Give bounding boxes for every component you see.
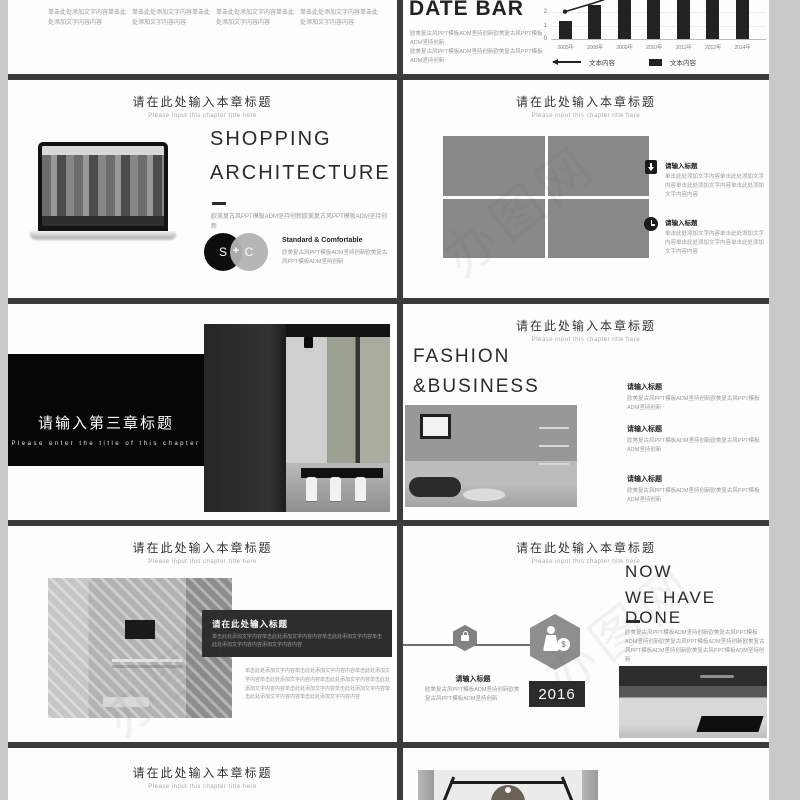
interior-photo-grid xyxy=(443,136,649,258)
venn-diagram: S C + xyxy=(204,233,274,273)
slide-date-bar-chart[interactable]: DATE BAR 欧美复古风PPT模板ADM坚持创新欧美复古风PPT模板ADM坚… xyxy=(403,0,769,74)
chapter-subtitle: Please input this chapter title here xyxy=(403,337,769,343)
list-item: 请输入标题 欧美复古风PPT模板ADM坚持创新欧美复古风PPT模板ADM坚持创新 xyxy=(627,474,767,505)
list-item: 请输入标题 欧美复古风PPT模板ADM坚持创新欧美复古风PPT模板ADM坚持创新 xyxy=(627,382,767,413)
venn-letter-c: C xyxy=(245,245,254,259)
list-item: 请输入标题 单击此处添加文字内容单击此处添加文字内容单击此处添加文字内容单击此处… xyxy=(665,217,765,257)
bedroom-photo-dark xyxy=(548,136,650,196)
section-heading-line2: &BUSINESS xyxy=(413,376,540,398)
alarm-clock-icon xyxy=(644,217,658,231)
laptop-mockup xyxy=(30,142,176,238)
text-block: 单击此处添加文字内容单击此处添加文字内容内容 xyxy=(216,8,298,28)
caption-title: 请在此处输入标题 xyxy=(212,618,382,630)
download-document-icon xyxy=(645,160,657,174)
office-lobby-photo xyxy=(619,666,767,738)
section-heading-line2: WE HAVE DONE xyxy=(625,588,769,628)
slide-chapter-three-banner[interactable]: 请输入第三章标题 Please enter the title of this … xyxy=(8,304,397,520)
heading-dash xyxy=(626,620,640,623)
row-divider-4 xyxy=(8,742,769,748)
template-preview-page: 单击此处添加文字内容单击此处添加文字内容内容 单击此处添加文字内容单击此处添加文… xyxy=(0,0,800,800)
chart-description-1: 欧美复古风PPT模板ADM坚持创新欧美复古风PPT模板ADM坚持创新 xyxy=(410,30,550,48)
dollar-icon: $ xyxy=(557,638,570,651)
slide-text-columns[interactable]: 单击此处添加文字内容单击此处添加文字内容内容 单击此处添加文字内容单击此处添加文… xyxy=(8,0,397,74)
chapter-subtitle: Please input this chapter title here xyxy=(8,113,397,119)
legend-line-arrow-icon xyxy=(553,61,581,63)
text-block: 单击此处添加文字内容单击此处添加文字内容内容 xyxy=(48,8,130,28)
caption-description: 单击此处添加文字内容单击此处添加文字内容内容单击此处添加文字内容单击此处添加文字… xyxy=(212,634,382,649)
slide-interior-photo-grid[interactable]: 请在此处输入本章标题 Please input this chapter tit… xyxy=(403,80,769,298)
section-description: 欧美复古风PPT模板ADM坚持创新欧美复古风PPT模板ADM坚持创新 xyxy=(211,212,391,232)
banner-title: 请输入第三章标题 xyxy=(8,412,204,433)
body-paragraph: 单击此处添加文字内容单击此处添加文字内容内容单击此处添加文字内容单击此处添加文字… xyxy=(245,667,392,702)
lock-icon xyxy=(461,635,469,641)
section-heading-line1: FASHION xyxy=(413,346,510,368)
row-divider-3 xyxy=(8,520,769,526)
chapter-title: 请在此处输入本章标题 xyxy=(8,93,397,110)
list-item: 请输入标题 欧美复古风PPT模板ADM坚持创新欧美复古风PPT模板ADM坚持创新 xyxy=(627,424,767,455)
banner-subtitle: Please enter the title of this chapter xyxy=(8,441,204,447)
slide-now-we-have-done[interactable]: 请在此处输入本章标题 Please input this chapter tit… xyxy=(403,526,769,742)
chapter-subtitle: Please input this chapter title here xyxy=(8,784,397,790)
item-title: 请输入标题 xyxy=(627,424,767,434)
chapter-subtitle: Please input this chapter title here xyxy=(403,559,769,565)
legend-label: 文本内容 xyxy=(670,57,696,67)
chapter-subtitle: Please input this chapter title here xyxy=(8,559,397,565)
slide-photo-caption[interactable]: 请在此处输入本章标题 Please input this chapter tit… xyxy=(8,526,397,742)
item-title: 请输入标题 xyxy=(665,160,765,170)
milestone-title: 请输入标题 xyxy=(429,674,517,684)
chapter-banner: 请输入第三章标题 Please enter the title of this … xyxy=(8,354,204,466)
kitchen-dining-photo xyxy=(204,324,390,512)
study-room-photo xyxy=(443,199,545,259)
slide-pendant-photo[interactable] xyxy=(403,748,769,800)
section-description: 欧美复古风PPT模板ADM坚持创新欧美复古风PPT模板ADM坚持创新欧美复古风P… xyxy=(625,629,767,665)
feature-title: Standard & Comfortable xyxy=(282,237,363,244)
city-street-photo xyxy=(42,146,164,226)
bedroom-photo-light xyxy=(548,199,650,259)
item-description: 欧美复古风PPT模板ADM坚持创新欧美复古风PPT模板ADM坚持创新 xyxy=(627,487,767,505)
chart-legend: 文本内容 文本内容 xyxy=(553,57,696,67)
chapter-title: 请在此处输入本章标题 xyxy=(8,539,397,556)
venn-letter-s: S xyxy=(219,245,227,259)
section-heading-line1: NOW xyxy=(625,562,673,582)
chapter-title: 请在此处输入本章标题 xyxy=(403,317,769,334)
caption-box: 请在此处输入标题 单击此处添加文字内容单击此处添加文字内容内容单击此处添加文字内… xyxy=(202,610,392,657)
item-description: 单击此处添加文字内容单击此处添加文字内容单击此处添加文字内容单击此处添加文字内容… xyxy=(665,230,765,257)
list-item: 请输入标题 单击此处添加文字内容单击此处添加文字内容单击此处添加文字内容单击此处… xyxy=(665,160,765,200)
bar-chart-xlabels: 2005年2008年2009年2010年2011年2012年2014年 xyxy=(551,43,766,53)
chapter-title: 请在此处输入本章标题 xyxy=(8,764,397,781)
legend-label: 文本内容 xyxy=(589,57,615,67)
item-title: 请输入标题 xyxy=(665,217,765,227)
feature-description: 欧美复古风PPT模板ADM坚持创新欧美复古风PPT模板ADM坚持创新 xyxy=(282,249,388,267)
item-title: 请输入标题 xyxy=(627,382,767,392)
slide-shopping-architecture[interactable]: 请在此处输入本章标题 Please input this chapter tit… xyxy=(8,80,397,298)
section-heading-line2: ARCHITECTURE xyxy=(210,162,391,185)
item-title: 请输入标题 xyxy=(627,474,767,484)
section-heading-line1: SHOPPING xyxy=(210,128,332,151)
slide-fashion-business[interactable]: 请在此处输入本章标题 Please input this chapter tit… xyxy=(403,304,769,520)
legend-bar-icon xyxy=(649,59,662,66)
chart-title: DATE BAR xyxy=(409,0,524,21)
chapter-title: 请在此处输入本章标题 xyxy=(403,93,769,110)
text-block: 单击此处添加文字内容单击此处添加文字内容内容 xyxy=(132,8,214,28)
year-badge: 2016 xyxy=(529,681,585,707)
chart-line xyxy=(551,0,766,40)
item-description: 单击此处添加文字内容单击此处添加文字内容单击此处添加文字内容单击此处添加文字内容… xyxy=(665,173,765,200)
row-divider-1 xyxy=(8,74,769,80)
chapter-subtitle: Please input this chapter title here xyxy=(403,113,769,119)
milestone-description: 欧美复古风PPT模板ADM坚持创新欧美复古风PPT模板ADM坚持创新 xyxy=(425,686,521,704)
bar-chart-ylabels: 012 xyxy=(536,0,547,40)
milestone-hexagon-small xyxy=(453,625,477,651)
slide-next-chapter[interactable]: 请在此处输入本章标题 Please input this chapter tit… xyxy=(8,748,397,800)
item-description: 欧美复古风PPT模板ADM坚持创新欧美复古风PPT模板ADM坚持创新 xyxy=(627,395,767,413)
venn-plus-sign: + xyxy=(230,245,242,257)
person-money-icon xyxy=(547,626,555,634)
row-divider-2 xyxy=(8,298,769,304)
pendant-lamp-photo xyxy=(418,770,598,800)
milestone-hexagon-large: $ xyxy=(530,614,580,670)
living-room-photo xyxy=(443,136,545,196)
chapter-title: 请在此处输入本章标题 xyxy=(403,539,769,556)
chart-description-2: 欧美复古风PPT模板ADM坚持创新欧美复古风PPT模板ADM坚持创新 xyxy=(410,48,550,66)
item-description: 欧美复古风PPT模板ADM坚持创新欧美复古风PPT模板ADM坚持创新 xyxy=(627,437,767,455)
text-block: 单击此处添加文字内容单击此处添加文字内容内容 xyxy=(300,8,382,28)
heading-dash xyxy=(212,202,226,205)
lounge-interior-photo xyxy=(405,405,577,507)
